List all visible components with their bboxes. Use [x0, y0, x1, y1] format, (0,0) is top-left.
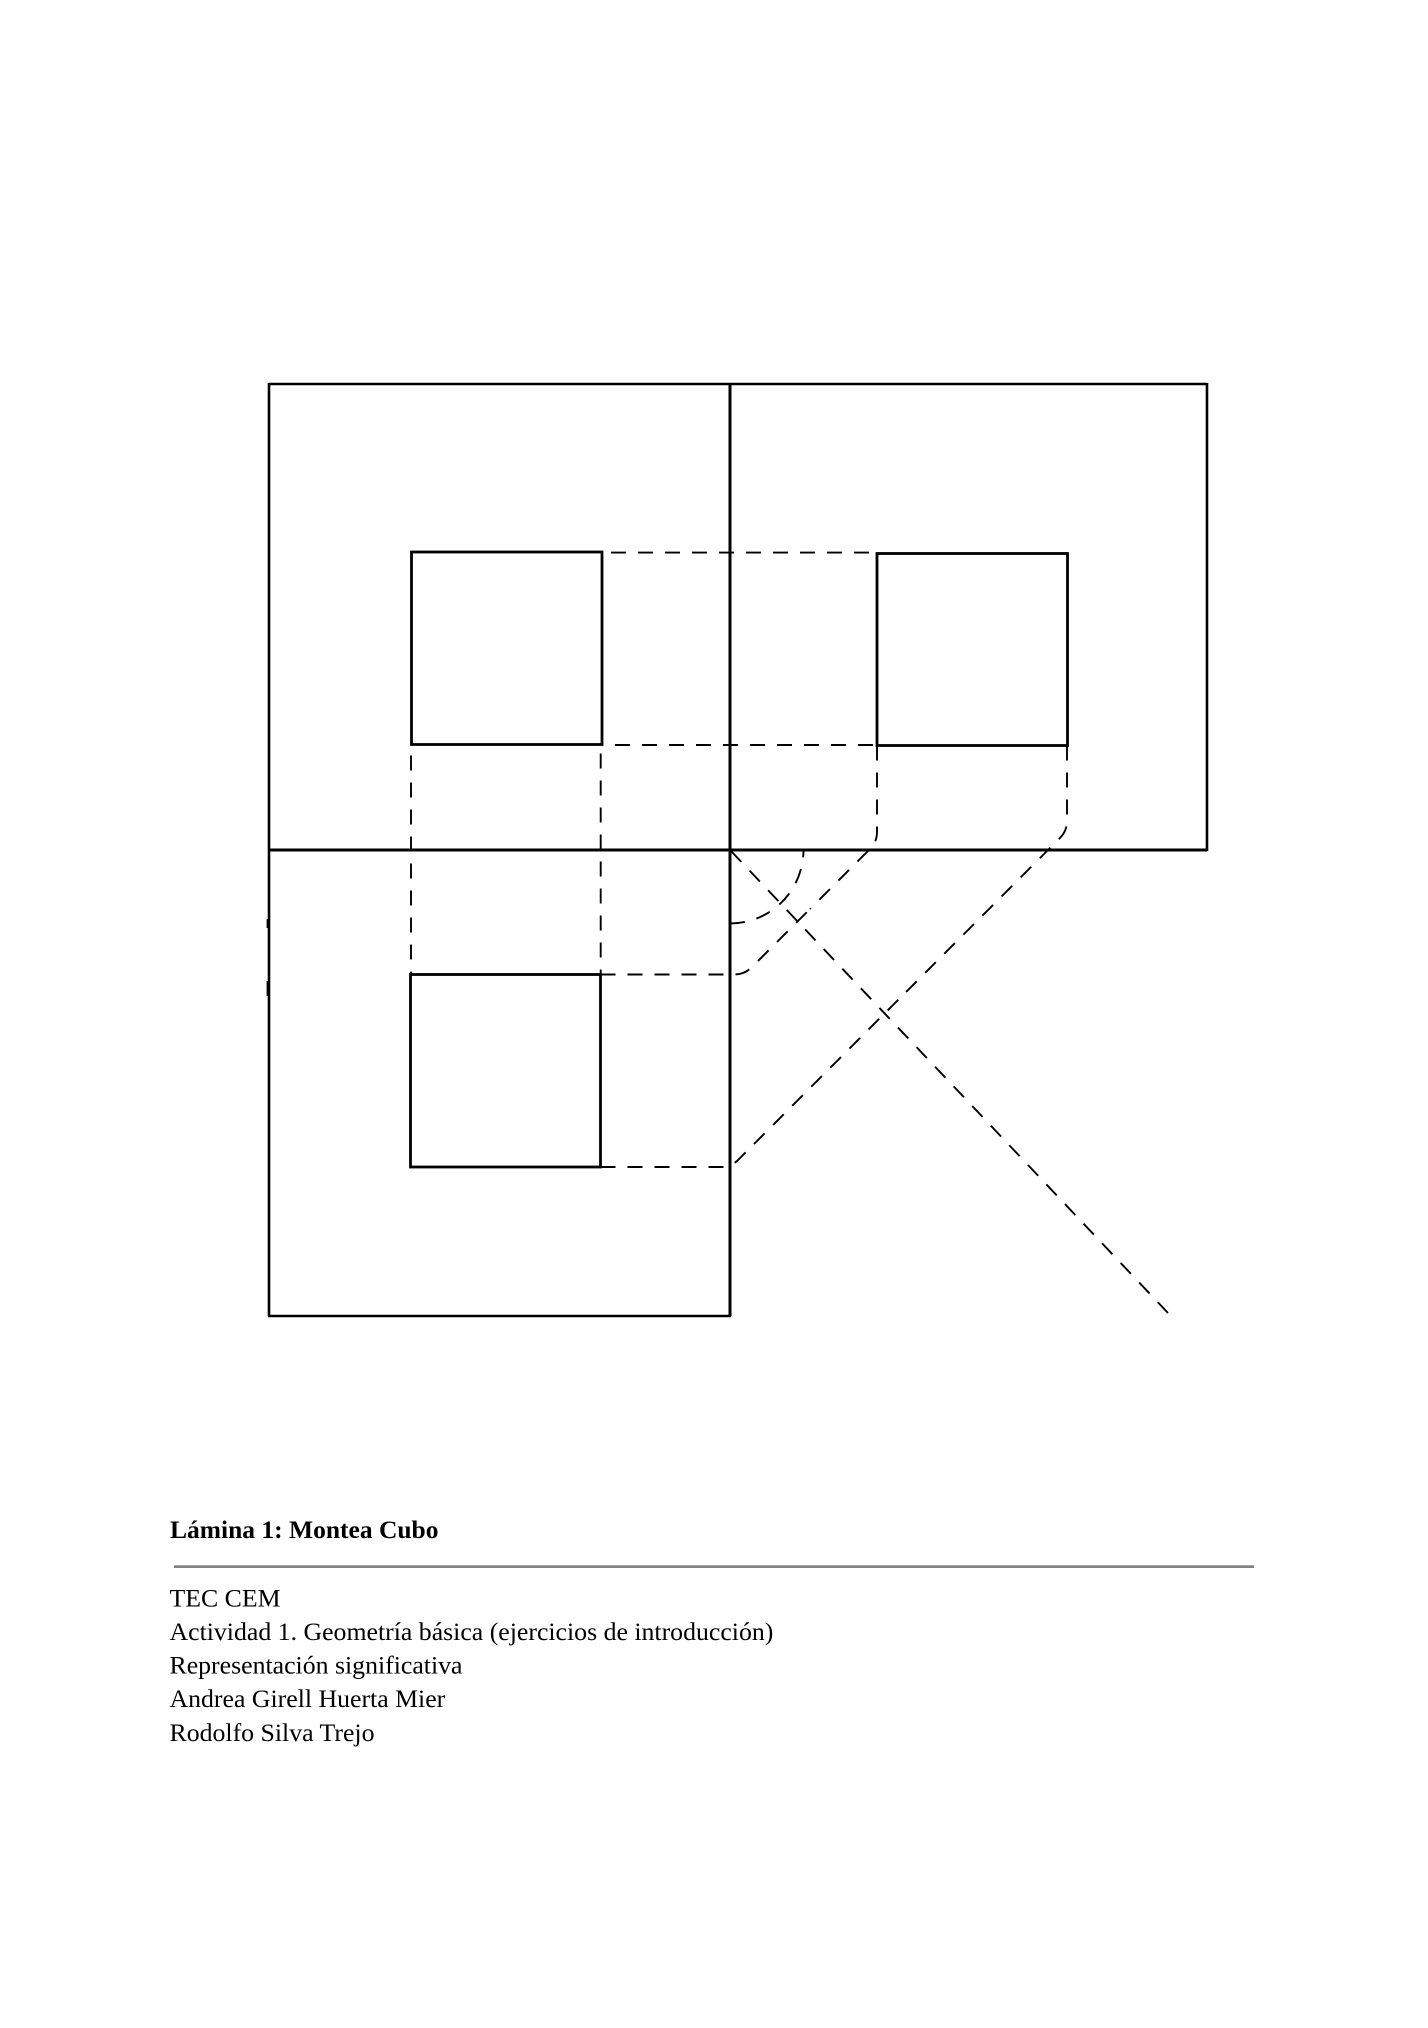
svg-text:Actividad 1. Geometría básica: Actividad 1. Geometría básica (ejercicio… [170, 1617, 774, 1646]
svg-text:Andrea Girell Huerta Mier: Andrea Girell Huerta Mier [170, 1684, 446, 1713]
svg-text:Rodolfo Silva Trejo: Rodolfo Silva Trejo [170, 1718, 375, 1747]
svg-text:TEC CEM: TEC CEM [170, 1583, 281, 1612]
svg-text:Representación significativa: Representación significativa [170, 1650, 464, 1679]
svg-text:Lámina 1: Montea Cubo: Lámina 1: Montea Cubo [170, 1515, 438, 1544]
